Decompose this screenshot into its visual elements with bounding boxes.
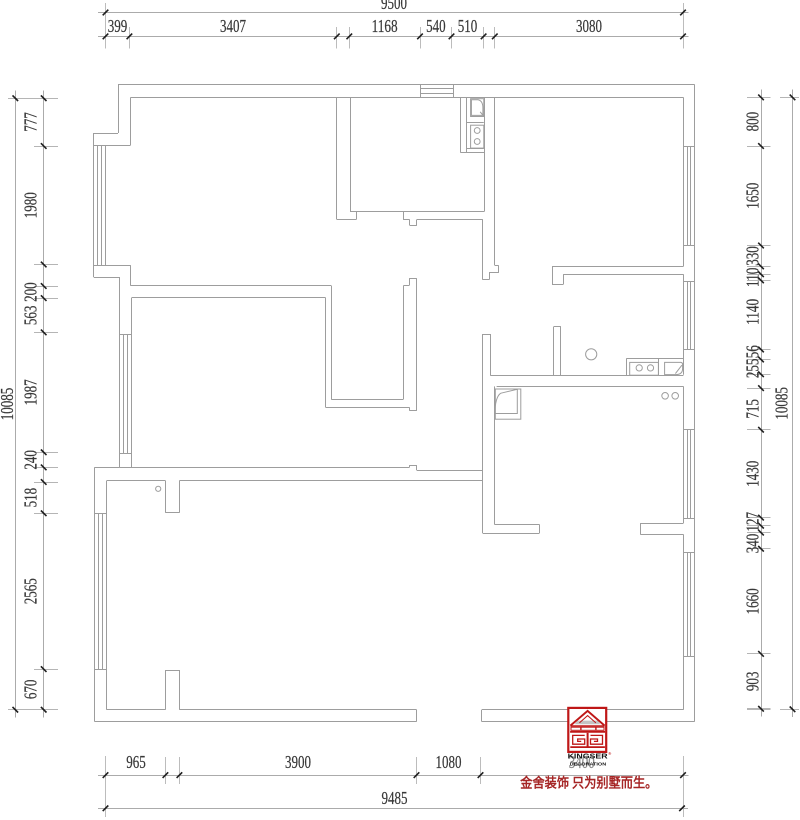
svg-text:10085: 10085 [0, 388, 17, 421]
svg-text:1987: 1987 [21, 379, 41, 405]
svg-text:9485: 9485 [382, 788, 408, 808]
svg-text:800: 800 [743, 112, 763, 132]
svg-text:903: 903 [743, 672, 763, 692]
svg-text:1980: 1980 [21, 192, 41, 218]
svg-text:510: 510 [458, 16, 478, 36]
svg-text:777: 777 [21, 112, 41, 132]
svg-text:®: ® [608, 751, 611, 756]
svg-text:340: 340 [743, 534, 763, 554]
svg-text:2565: 2565 [21, 578, 41, 604]
svg-text:1650: 1650 [743, 183, 763, 209]
svg-text:715: 715 [743, 399, 763, 419]
svg-text:金舍装饰 只为别墅而生。: 金舍装饰 只为别墅而生。 [519, 775, 657, 791]
svg-text:965: 965 [126, 752, 146, 772]
svg-text:563: 563 [21, 306, 41, 326]
svg-text:1140: 1140 [743, 299, 763, 325]
svg-text:330: 330 [743, 246, 763, 266]
svg-text:127: 127 [743, 512, 763, 532]
svg-text:1080: 1080 [436, 752, 462, 772]
svg-text:240: 240 [21, 450, 41, 470]
svg-text:1660: 1660 [743, 588, 763, 614]
svg-text:3407: 3407 [220, 16, 246, 36]
svg-text:255: 255 [743, 359, 763, 379]
svg-text:56: 56 [743, 345, 763, 358]
svg-text:540: 540 [426, 16, 446, 36]
svg-text:200: 200 [21, 282, 41, 302]
svg-text:518: 518 [21, 488, 41, 508]
svg-text:9500: 9500 [381, 0, 407, 13]
svg-text:1430: 1430 [743, 461, 763, 487]
svg-text:670: 670 [21, 680, 41, 700]
svg-text:3900: 3900 [285, 752, 311, 772]
svg-text:KINGSER: KINGSER [568, 751, 609, 760]
svg-text:10085: 10085 [772, 387, 792, 420]
svg-text:399: 399 [108, 16, 128, 36]
svg-text:3080: 3080 [576, 16, 602, 36]
svg-text:110: 110 [743, 268, 763, 288]
svg-text:DECORATION: DECORATION [570, 761, 607, 767]
svg-text:1168: 1168 [372, 16, 398, 36]
